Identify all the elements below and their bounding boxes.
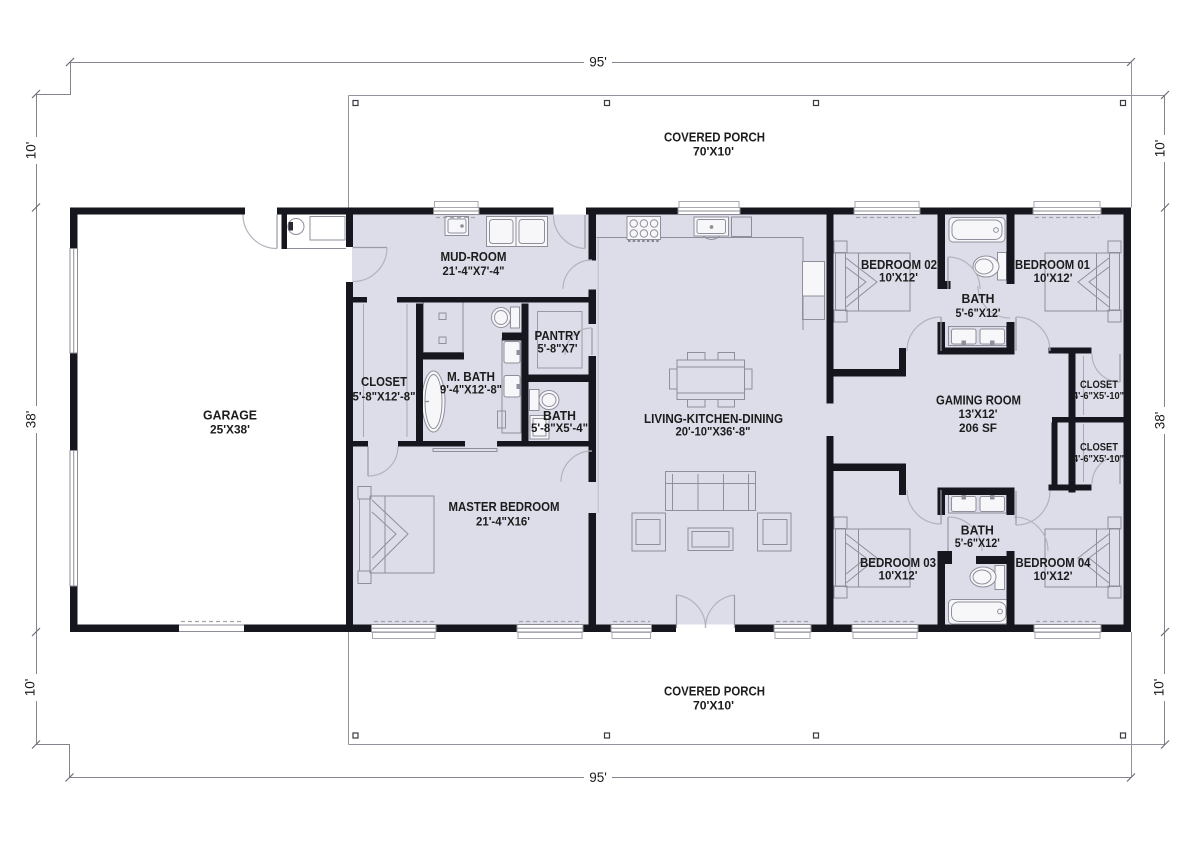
svg-text:70'X10': 70'X10' [693,701,734,713]
svg-text:21'-4"X7'-4": 21'-4"X7'-4" [443,266,505,278]
svg-text:CLOSET: CLOSET [1080,379,1118,391]
svg-text:13'X12': 13'X12' [959,409,998,421]
svg-text:PANTRY: PANTRY [535,328,581,343]
svg-text:BATH: BATH [962,291,995,306]
svg-text:BEDROOM 01: BEDROOM 01 [1015,257,1090,272]
svg-text:MUD-ROOM: MUD-ROOM [441,249,507,264]
svg-text:25'X38': 25'X38' [210,425,250,437]
svg-text:20'-10"X36'-8": 20'-10"X36'-8" [676,427,751,439]
svg-text:10': 10' [1152,679,1167,697]
svg-text:10'X12': 10'X12' [879,571,918,583]
svg-text:95': 95' [589,55,607,70]
svg-text:21'-4"X16': 21'-4"X16' [476,517,530,529]
svg-text:LIVING-KITCHEN-DINING: LIVING-KITCHEN-DINING [644,411,783,426]
svg-text:5'-8"X12'-8": 5'-8"X12'-8" [353,392,416,404]
svg-text:10': 10' [1153,140,1168,158]
svg-text:GARAGE: GARAGE [203,408,257,423]
svg-text:BATH: BATH [543,408,576,423]
svg-text:BEDROOM 02: BEDROOM 02 [861,257,937,272]
svg-text:4'-6"X5'-10": 4'-6"X5'-10" [1073,391,1124,402]
svg-text:95': 95' [589,770,607,785]
svg-text:COVERED PORCH: COVERED PORCH [664,684,765,699]
svg-text:38': 38' [1153,412,1168,430]
svg-text:10'X12': 10'X12' [879,273,918,285]
svg-text:BATH: BATH [961,523,994,538]
svg-text:BEDROOM 03: BEDROOM 03 [860,555,936,570]
svg-text:10'X12': 10'X12' [1034,273,1073,285]
svg-text:5'-6"X12': 5'-6"X12' [956,308,1001,320]
svg-text:BEDROOM 04: BEDROOM 04 [1016,555,1092,570]
svg-text:38': 38' [24,411,39,429]
svg-text:CLOSET: CLOSET [1080,442,1118,454]
svg-text:10': 10' [23,679,38,697]
svg-text:5'-8"X7': 5'-8"X7' [538,344,578,356]
svg-text:9'-4"X12'-8": 9'-4"X12'-8" [440,385,502,397]
svg-text:MASTER BEDROOM: MASTER BEDROOM [449,499,560,514]
svg-text:COVERED PORCH: COVERED PORCH [664,130,765,145]
svg-text:10'X12': 10'X12' [1034,571,1073,583]
svg-text:5'-8"X5'-4": 5'-8"X5'-4" [531,423,588,435]
svg-text:70'X10': 70'X10' [693,147,734,159]
svg-text:10': 10' [24,142,39,160]
svg-text:CLOSET: CLOSET [361,374,407,389]
svg-text:206 SF: 206 SF [959,423,997,435]
svg-text:GAMING ROOM: GAMING ROOM [936,393,1021,408]
svg-text:M. BATH: M. BATH [447,369,495,384]
svg-text:5'-6"X12': 5'-6"X12' [955,538,1000,550]
svg-text:4'-6"X5'-10": 4'-6"X5'-10" [1073,454,1124,465]
